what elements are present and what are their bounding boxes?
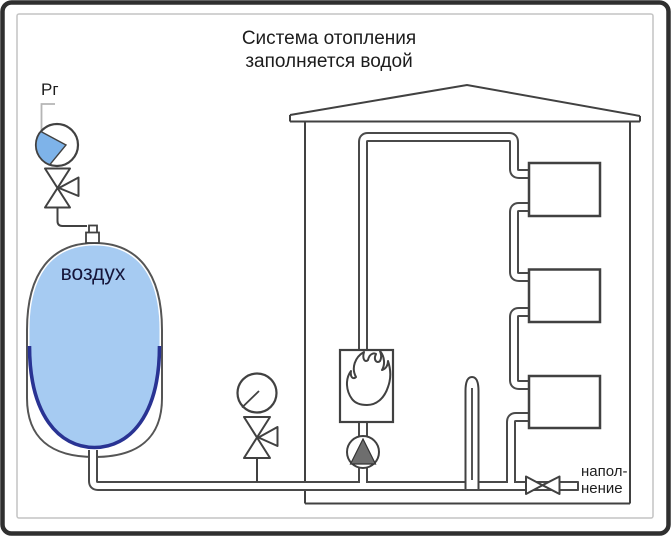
bottom-return-pipe xyxy=(93,450,578,486)
radiators xyxy=(529,163,600,428)
radiator-2 xyxy=(529,270,600,323)
diagram-title: Система отопления заполняется водой xyxy=(242,27,416,73)
valve-stem xyxy=(58,206,88,226)
three-way-valve-1 xyxy=(45,169,79,208)
house-roof xyxy=(290,85,640,116)
pressure-gauge-label: Рг xyxy=(41,80,59,100)
fill-valve xyxy=(526,477,560,495)
heating-system-diagram: Система отопления заполняется водой Рг в… xyxy=(0,0,671,537)
tank-gauge-assembly xyxy=(36,104,99,243)
supply-pipe xyxy=(363,137,531,358)
boiler xyxy=(340,350,393,422)
tank-nipple xyxy=(86,233,99,244)
circulation-pump xyxy=(347,436,379,468)
fill-connection-label: напол- нение xyxy=(581,463,628,497)
radiator-1 xyxy=(529,163,600,216)
radiator-3 xyxy=(529,376,600,428)
overflow-tube xyxy=(466,377,479,489)
pipes-outline xyxy=(93,137,578,486)
check-gauge-assembly xyxy=(238,374,278,483)
tank-air-label: воздух xyxy=(61,262,126,286)
pipes-core xyxy=(93,137,578,486)
three-way-valve-2 xyxy=(244,417,278,458)
